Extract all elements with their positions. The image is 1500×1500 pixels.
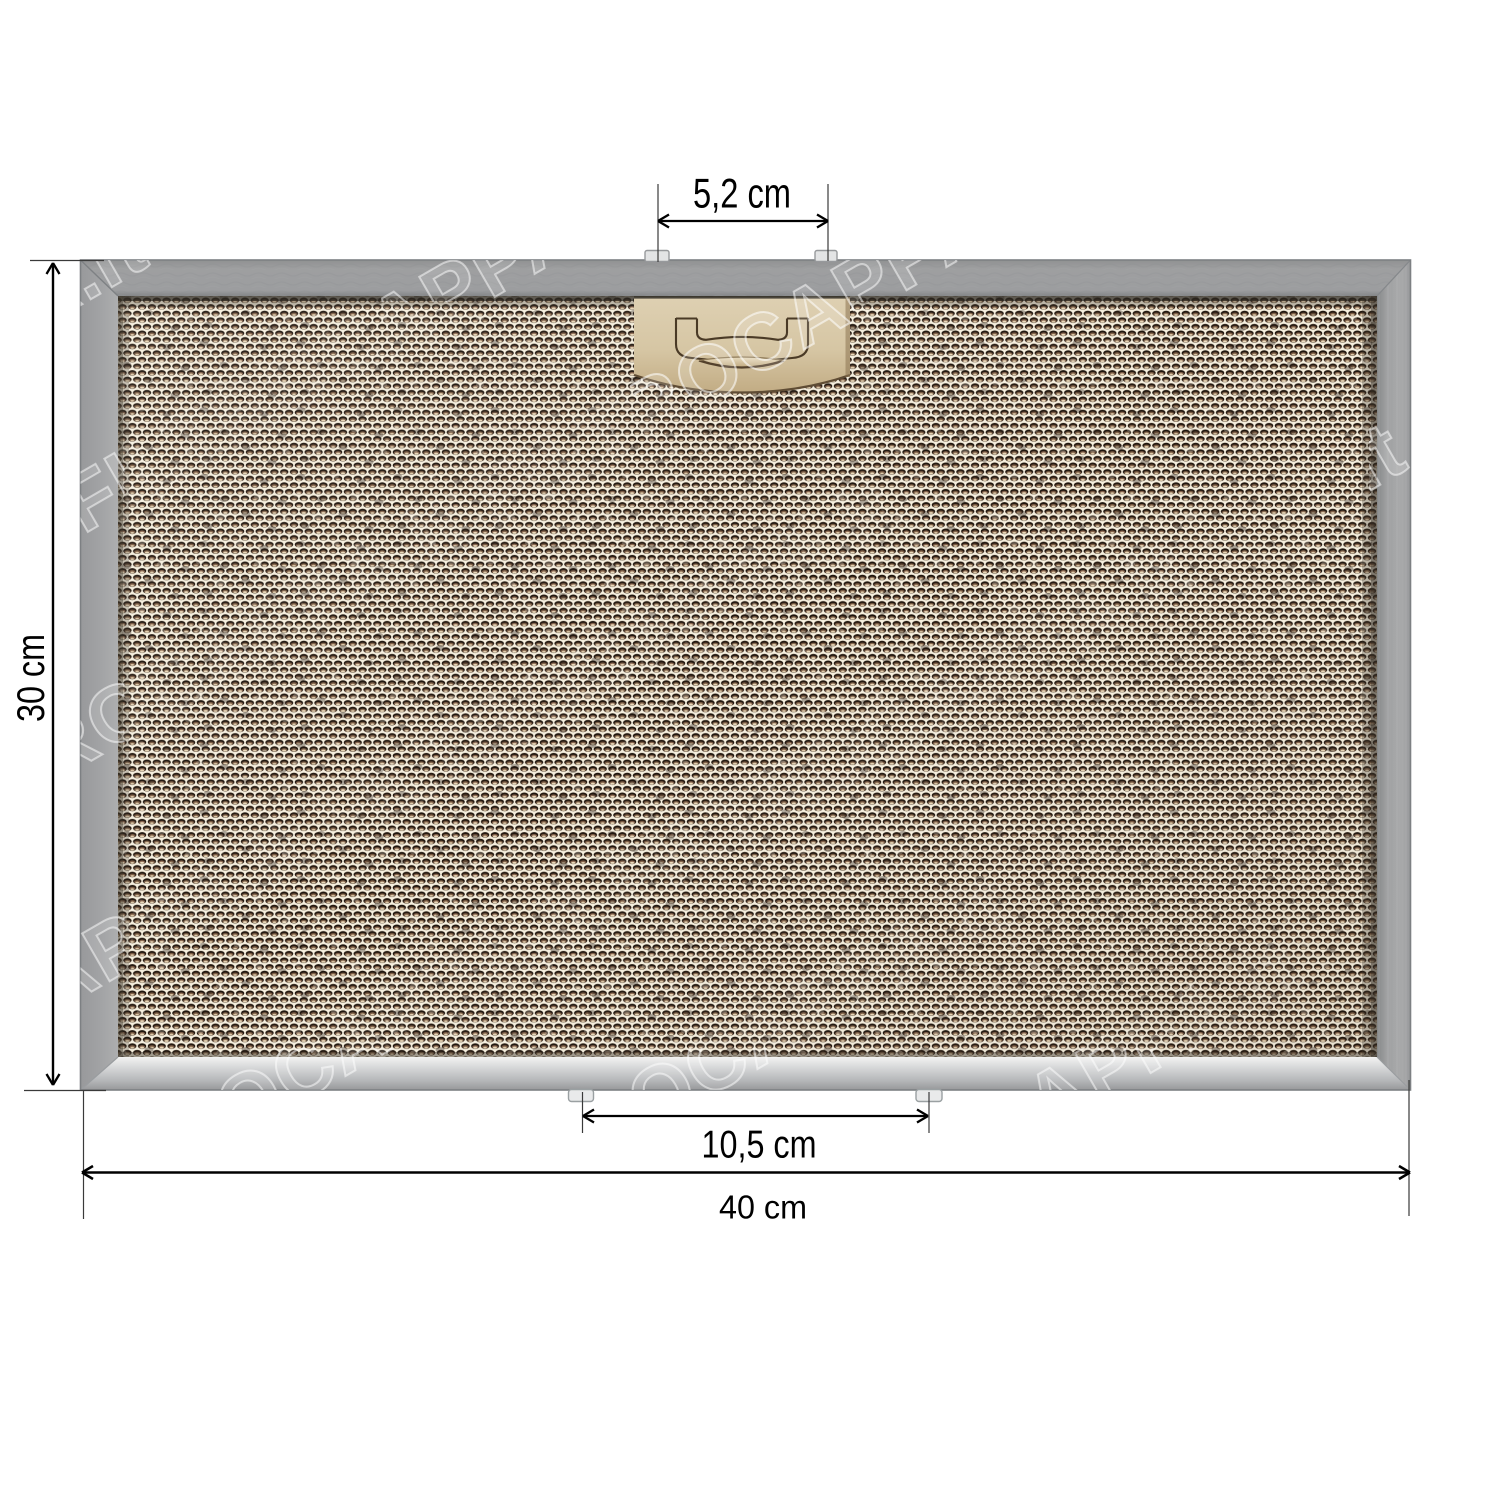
svg-text:30 cm: 30 cm bbox=[10, 634, 53, 722]
svg-text:5,2 cm: 5,2 cm bbox=[693, 170, 791, 217]
svg-text:40 cm: 40 cm bbox=[719, 1189, 807, 1226]
svg-text:10,5 cm: 10,5 cm bbox=[702, 1124, 817, 1167]
